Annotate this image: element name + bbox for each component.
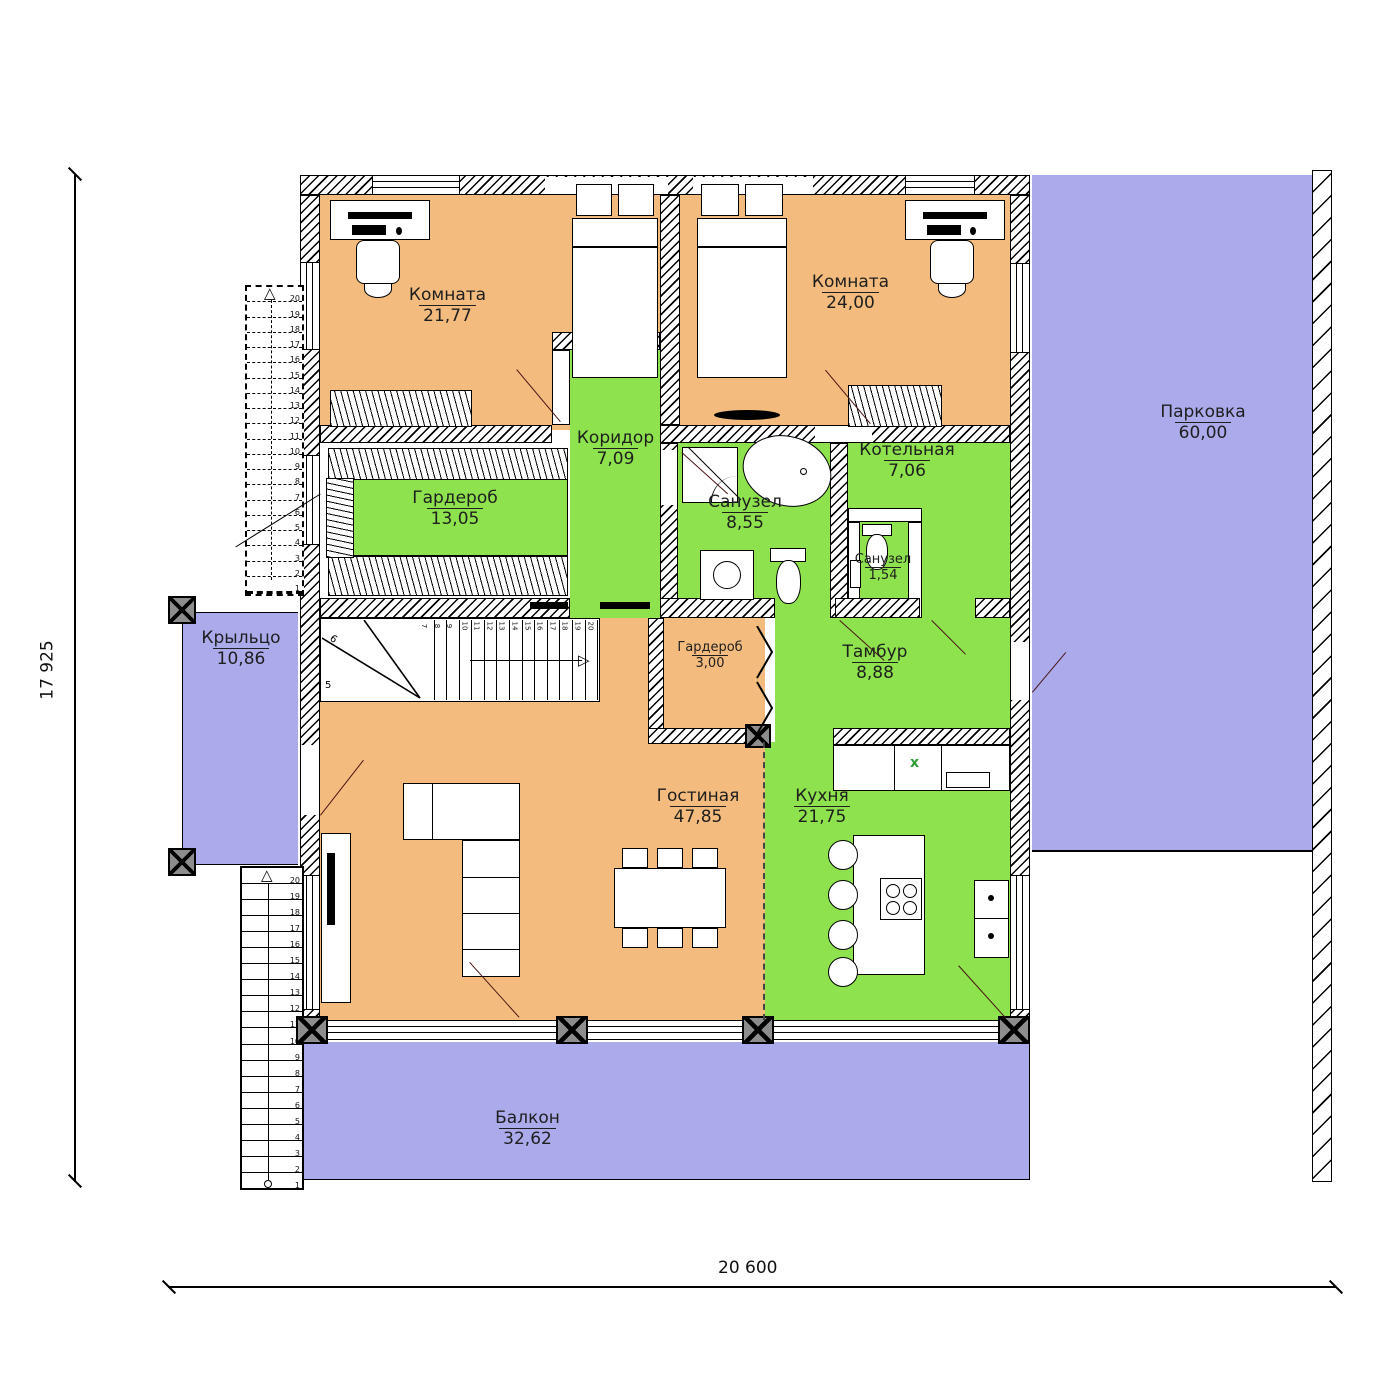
sofa-cushion-line: [463, 913, 519, 914]
room-area: 3,00: [692, 655, 729, 671]
room-label-bedroom1: Комната 21,77: [385, 285, 510, 326]
window-bedroom2: [905, 175, 975, 195]
pillow: [745, 184, 783, 216]
room-area: 47,85: [670, 806, 727, 827]
bar-stool: [828, 920, 858, 950]
room-area: 21,77: [419, 305, 476, 326]
stairs-up-arrow-icon: △: [264, 286, 276, 301]
counter-inner-box: [946, 772, 990, 788]
stair-step: 11: [247, 424, 302, 439]
room-area: 24,00: [822, 292, 879, 313]
room-area: 7,06: [884, 460, 930, 481]
stair-step: 1: [247, 577, 302, 594]
room-name: Гостиная: [638, 786, 758, 806]
threshold-bar: [530, 602, 568, 609]
porch-column: [168, 596, 196, 624]
wall-bedroom1-south: [320, 425, 552, 443]
room-label-living: Гостиная 47,85: [638, 786, 758, 827]
room-label-tambour: Тамбур 8,88: [820, 642, 930, 683]
stair-step: 8: [247, 470, 302, 485]
room-label-wc: Санузел 1,54: [843, 552, 923, 584]
room-label-bathroom: Санузел 8,55: [690, 492, 800, 533]
blanket-line: [572, 246, 658, 248]
porch-column: [168, 848, 196, 876]
stair-step: 5: [242, 1109, 302, 1125]
keyboard-icon: [927, 225, 961, 235]
stairs-winder-number: 5: [325, 680, 331, 691]
stove: [880, 878, 922, 920]
bathtub-drain: [800, 468, 807, 475]
clothes-rail: [328, 448, 568, 480]
stair-step: 18: [242, 900, 302, 916]
mouse-icon: [970, 227, 976, 235]
stair-step: 7: [422, 620, 435, 700]
door-gap-entry: [1011, 642, 1029, 700]
room-area: 21,75: [794, 806, 851, 827]
dining-chair: [657, 928, 683, 948]
sink-divider: [975, 918, 1008, 919]
dim-line-vertical: [74, 175, 76, 1182]
wall-wardrobe-small-left: [648, 618, 664, 742]
stair-step: 3: [242, 1141, 302, 1157]
window-right-bedroom2: [1010, 263, 1030, 353]
stair-step: 15: [242, 948, 302, 964]
room-label-boiler: Котельная 7,06: [842, 440, 972, 481]
room-area: 13,05: [427, 508, 484, 529]
wall-tambour-south-b: [833, 728, 1010, 745]
facade-column: [556, 1016, 588, 1044]
wall-tambour-south-a: [648, 728, 760, 744]
stair-step: 16: [247, 348, 302, 363]
room-area: 8,55: [722, 512, 768, 533]
stair-step: 3: [247, 546, 302, 561]
room-name: Крыльцо: [182, 628, 300, 648]
room-name: Санузел: [843, 552, 923, 567]
door-gap-porch: [301, 745, 319, 815]
stairs-direction-line: [470, 660, 582, 661]
stairs-center-line: [271, 300, 272, 580]
sink-tap: [988, 933, 994, 939]
stair-step: 8: [435, 620, 448, 700]
sofa-cushion-line: [432, 784, 433, 839]
zone-divider-dashed: [763, 742, 765, 1020]
stair-step: 14: [247, 379, 302, 394]
stair-step: 16: [242, 932, 302, 948]
counter-divider: [894, 746, 895, 790]
stair-step: 2: [242, 1157, 302, 1173]
sofa-section: [403, 783, 520, 840]
exterior-stairs-lower: 2019181716151413121110987654321: [240, 866, 304, 1190]
room-name: Гардероб: [395, 488, 515, 508]
kitchen-sink-unit: [974, 880, 1009, 958]
room-corridor: [570, 350, 660, 618]
stair-step: 2: [247, 562, 302, 577]
window-right-kitchen: [1010, 875, 1030, 1010]
pillow: [618, 184, 654, 216]
kitchen-counter: [833, 745, 1010, 791]
wall-bottom-glazing: [300, 1020, 1030, 1040]
monitor-icon: [348, 212, 412, 219]
room-area: 32,62: [499, 1128, 556, 1149]
room-area: 8,88: [852, 662, 898, 683]
room-name: Балкон: [465, 1108, 590, 1128]
sofa-cushion-line: [463, 949, 519, 950]
dim-height-label: 17 925: [38, 640, 58, 699]
sofa-section: [462, 840, 520, 977]
stair-step: 15: [247, 363, 302, 378]
wall-mid-d: [975, 598, 1010, 618]
toilet-bowl: [776, 560, 801, 604]
stair-step: 12: [242, 996, 302, 1012]
bed: [697, 218, 787, 378]
washbasin: [700, 550, 754, 600]
bar-stool: [828, 840, 858, 870]
office-chair: [356, 240, 400, 284]
room-label-kitchen: Кухня 21,75: [772, 786, 872, 827]
bed: [572, 218, 658, 378]
room-name: Парковка: [1138, 402, 1268, 422]
stove-burner: [903, 884, 917, 898]
stove-burner: [903, 901, 917, 915]
stairs-center-line: [268, 884, 269, 1180]
stair-step: 4: [242, 1125, 302, 1141]
floor-plan-canvas: 7891011121314151617181920 ▷ 6 5 x 2019: [0, 0, 1400, 1400]
room-area: 7,09: [593, 448, 639, 469]
stair-step: 8: [242, 1061, 302, 1077]
wardrobe-cabinet: [848, 385, 942, 427]
dining-chair: [692, 928, 718, 948]
stair-step: 10: [242, 1028, 302, 1044]
stair-step: 13: [247, 394, 302, 409]
room-name: Коридор: [563, 428, 668, 448]
room-name: Санузел: [690, 492, 800, 512]
room-area: 10,86: [213, 648, 270, 669]
counter-divider: [941, 746, 942, 790]
room-area: 1,54: [865, 567, 902, 583]
blanket-line: [697, 246, 787, 248]
sink-mark: x: [910, 755, 919, 771]
room-name: Комната: [385, 285, 510, 305]
keyboard-icon: [352, 225, 386, 235]
room-name: Комната: [788, 272, 913, 292]
dining-chair: [692, 848, 718, 868]
dim-line-horizontal: [168, 1286, 1336, 1288]
dining-chair: [622, 848, 648, 868]
facade-column: [742, 1016, 774, 1044]
room-label-balcony: Балкон 32,62: [465, 1108, 590, 1149]
room-name: Гардероб: [655, 640, 765, 655]
stairs-winder: [322, 620, 422, 704]
wardrobe-cabinet: [330, 390, 472, 427]
facade-column: [296, 1016, 328, 1044]
wall-wc-top: [848, 508, 922, 522]
window-bedroom1: [372, 175, 460, 195]
facade-column: [998, 1016, 1030, 1044]
monitor-icon: [923, 212, 987, 219]
room-name: Кухня: [772, 786, 872, 806]
parking-zone: [1030, 175, 1312, 852]
stair-step: 6: [242, 1093, 302, 1109]
stair-step: 6: [247, 501, 302, 516]
stair-step: 9: [247, 455, 302, 470]
room-label-corridor: Коридор 7,09: [563, 428, 668, 469]
bar-stool: [828, 880, 858, 910]
dining-chair: [622, 928, 648, 948]
dining-table: [614, 868, 726, 928]
stairs-start-dot: [264, 1180, 272, 1188]
stair-step: 18: [247, 318, 302, 333]
sofa-cushion-line: [463, 877, 519, 878]
dim-width-label: 20 600: [718, 1258, 777, 1278]
exterior-stairs-upper: 2019181716151413121110987654321: [245, 285, 304, 596]
room-name: Котельная: [842, 440, 972, 460]
stair-step: 13: [242, 980, 302, 996]
stairs-up-arrow-icon: △: [261, 868, 273, 883]
room-label-porch: Крыльцо 10,86: [182, 628, 300, 669]
stove-burner: [886, 901, 900, 915]
threshold-bar: [600, 602, 650, 609]
office-chair: [930, 240, 974, 284]
stair-step: 14: [242, 964, 302, 980]
wall-mid-b: [660, 598, 775, 618]
tv-icon: [327, 853, 335, 925]
pillow: [701, 184, 739, 216]
stair-step: 7: [242, 1077, 302, 1093]
stair-step: 5: [247, 516, 302, 531]
stair-step: 17: [242, 916, 302, 932]
room-label-parking: Парковка 60,00: [1138, 402, 1268, 443]
stair-step: 10: [247, 440, 302, 455]
room-label-wardrobe-main: Гардероб 13,05: [395, 488, 515, 529]
tv-stand: [321, 833, 351, 1003]
wall-bedroom-divider: [660, 195, 680, 425]
stair-step: 17: [247, 333, 302, 348]
washbasin-bowl: [713, 561, 741, 589]
stair-step: 9: [242, 1045, 302, 1061]
ceiling-light-icon: [714, 410, 780, 420]
site-fence-wall: [1312, 170, 1332, 1182]
stairs-arrow-icon: ▷: [578, 651, 590, 669]
stair-step: 19: [242, 884, 302, 900]
room-label-bedroom2: Комната 24,00: [788, 272, 913, 313]
room-label-wardrobe-small: Гардероб 3,00: [655, 640, 765, 672]
bar-stool: [828, 957, 858, 987]
stair-step: 12: [247, 409, 302, 424]
room-area: 60,00: [1175, 422, 1232, 443]
mouse-icon: [396, 227, 402, 235]
stair-step: 9: [447, 620, 460, 700]
stair-step: 7: [247, 485, 302, 500]
pillow: [576, 184, 612, 216]
clothes-rail: [326, 478, 354, 558]
balcony-zone: [300, 1040, 1030, 1180]
clothes-rail: [328, 556, 568, 596]
dining-chair: [657, 848, 683, 868]
stair-step: 11: [242, 1012, 302, 1028]
room-name: Тамбур: [820, 642, 930, 662]
stair-step: 1: [242, 1173, 302, 1188]
stair-step: 19: [247, 302, 302, 317]
wall-mid-c: [835, 598, 920, 618]
sink-tap: [988, 895, 994, 901]
stove-burner: [886, 884, 900, 898]
